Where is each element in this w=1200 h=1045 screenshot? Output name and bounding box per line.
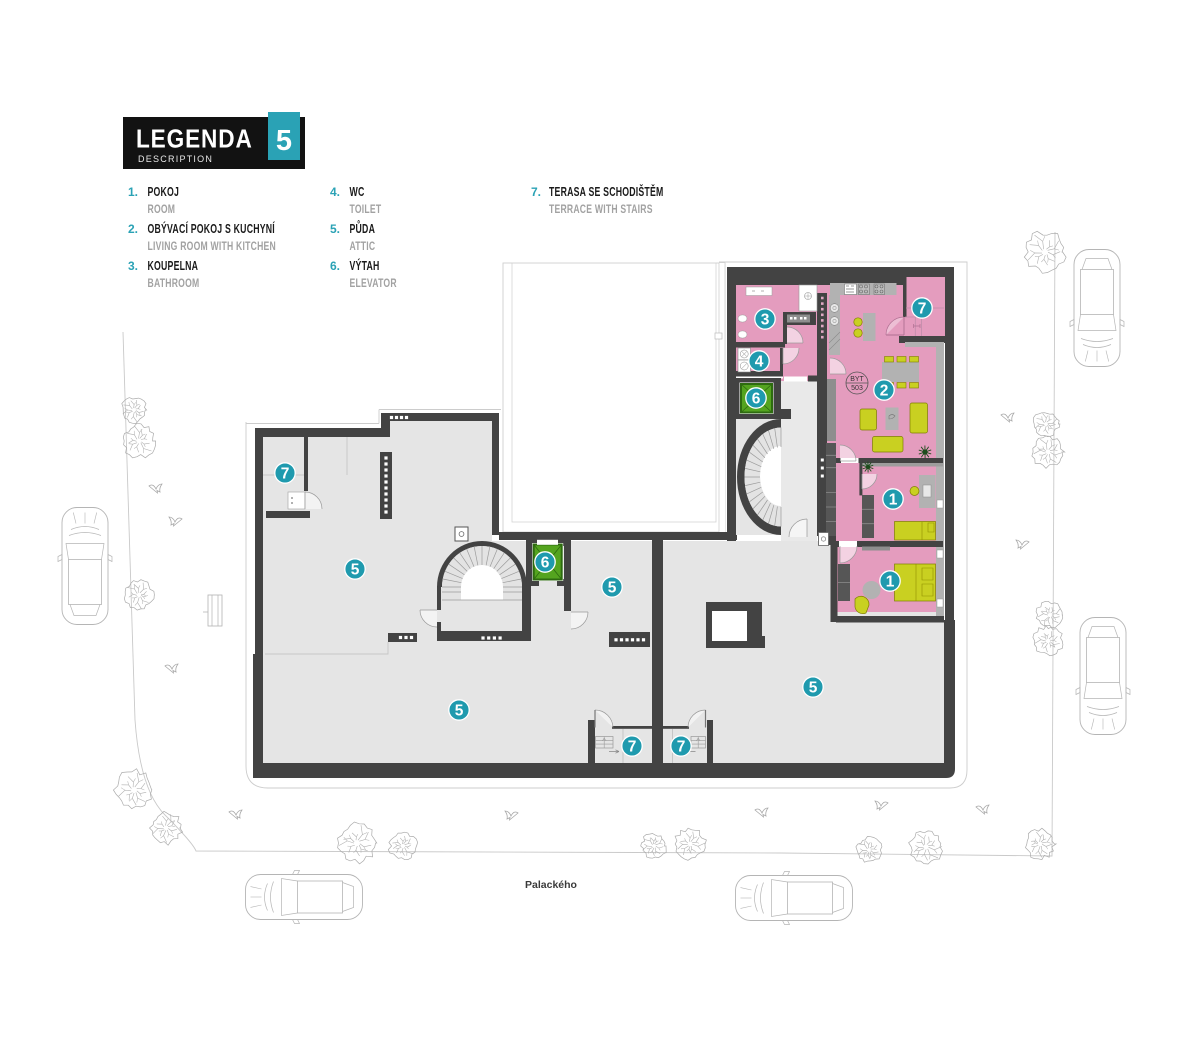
svg-text:DESCRIPTION: DESCRIPTION — [138, 154, 213, 164]
svg-text:1.: 1. — [128, 185, 138, 199]
svg-text:Palackého: Palackého — [525, 879, 577, 891]
svg-text:ATTIC: ATTIC — [350, 241, 376, 253]
svg-text:7: 7 — [281, 465, 290, 482]
svg-text:7: 7 — [628, 738, 637, 755]
svg-text:2: 2 — [880, 382, 889, 399]
svg-text:BATHROOM: BATHROOM — [148, 278, 200, 290]
svg-text:TERRACE WITH STAIRS: TERRACE WITH STAIRS — [549, 204, 653, 216]
svg-text:4.: 4. — [330, 185, 340, 199]
svg-text:BYT: BYT — [850, 376, 864, 383]
svg-text:5: 5 — [608, 579, 617, 596]
svg-text:503: 503 — [851, 385, 863, 392]
svg-text:1: 1 — [886, 573, 895, 590]
svg-text:POKOJ: POKOJ — [148, 186, 180, 200]
svg-text:LIVING ROOM WITH KITCHEN: LIVING ROOM WITH KITCHEN — [148, 241, 276, 253]
svg-text:3: 3 — [761, 311, 770, 328]
svg-text:6.: 6. — [330, 259, 340, 273]
svg-text:TOILET: TOILET — [350, 204, 382, 216]
svg-text:1: 1 — [889, 491, 898, 508]
svg-text:PŮDA: PŮDA — [350, 220, 376, 236]
svg-text:5: 5 — [276, 125, 292, 157]
svg-text:WC: WC — [350, 186, 365, 200]
svg-text:6: 6 — [752, 390, 761, 407]
svg-text:5: 5 — [809, 679, 818, 696]
svg-text:7: 7 — [918, 300, 927, 317]
svg-text:7.: 7. — [531, 185, 541, 199]
svg-text:LEGENDA: LEGENDA — [136, 125, 253, 154]
svg-text:7: 7 — [677, 738, 686, 755]
svg-text:ROOM: ROOM — [148, 204, 176, 216]
svg-text:5: 5 — [455, 702, 464, 719]
svg-text:5: 5 — [351, 561, 360, 578]
svg-text:KOUPELNA: KOUPELNA — [148, 260, 199, 274]
svg-text:5.: 5. — [330, 222, 340, 236]
svg-text:4: 4 — [755, 353, 764, 370]
svg-text:OBÝVACÍ POKOJ S KUCHYNÍ: OBÝVACÍ POKOJ S KUCHYNÍ — [148, 221, 276, 236]
svg-text:6: 6 — [541, 554, 550, 571]
svg-text:TERASA SE SCHODIŠTĚM: TERASA SE SCHODIŠTĚM — [549, 184, 663, 199]
svg-text:3.: 3. — [128, 259, 138, 273]
svg-text:2.: 2. — [128, 222, 138, 236]
svg-text:VÝTAH: VÝTAH — [350, 258, 380, 273]
svg-text:ELEVATOR: ELEVATOR — [350, 278, 398, 290]
